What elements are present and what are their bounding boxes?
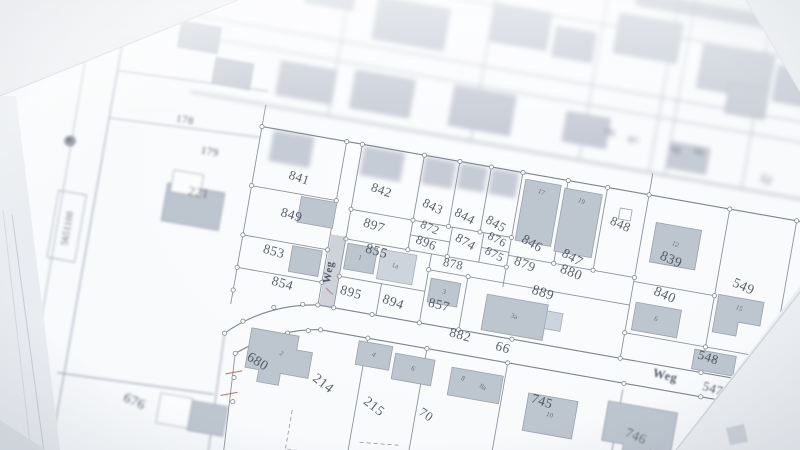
cadastral-map-photo: 4647484952 6762211781795651100 841842843… (0, 0, 800, 450)
photo-vignette (0, 0, 800, 450)
